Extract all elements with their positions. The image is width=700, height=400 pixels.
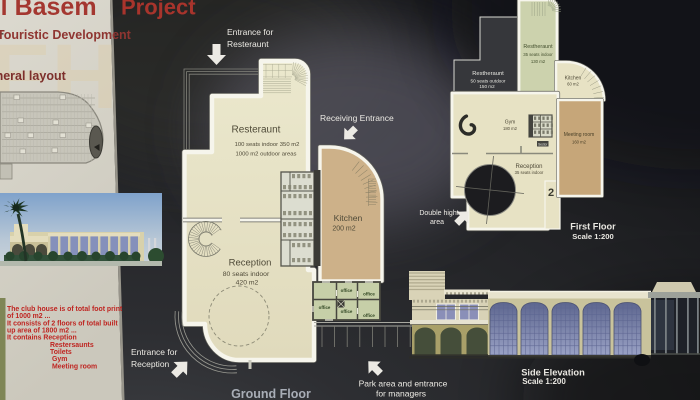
svg-text:for managers: for managers <box>376 389 426 399</box>
svg-text:Kitchen: Kitchen <box>334 213 363 223</box>
svg-text:office: office <box>341 288 353 293</box>
svg-text:Ground Floor: Ground Floor <box>231 387 311 400</box>
svg-text:up area of 1800 m2 ...: up area of 1800 m2 ... <box>7 328 77 335</box>
svg-text:60 m2: 60 m2 <box>567 82 579 87</box>
svg-text:150 m2: 150 m2 <box>479 84 495 89</box>
svg-text:Receiving Entrance: Receiving Entrance <box>320 113 394 123</box>
svg-text:Meeting room: Meeting room <box>564 132 595 138</box>
svg-text:The club house is of total foo: The club house is of total foot print <box>7 306 123 313</box>
svg-text:160 m2: 160 m2 <box>572 140 587 145</box>
svg-text:Restheraunt: Restheraunt <box>472 71 504 77</box>
svg-text:Project: Project <box>121 0 196 20</box>
svg-text:area: area <box>430 219 444 226</box>
svg-text:35 seats indoor: 35 seats indoor <box>523 52 553 57</box>
svg-text:200 m2: 200 m2 <box>332 226 355 233</box>
svg-text:Gym: Gym <box>505 120 516 126</box>
svg-text:Gym: Gym <box>52 356 67 363</box>
svg-text:Toilets: Toilets <box>50 349 72 356</box>
svg-text:Reception: Reception <box>131 359 170 369</box>
svg-text:420 m2: 420 m2 <box>236 280 259 287</box>
svg-text:2: 2 <box>548 187 554 199</box>
svg-text:of 1000 m2 ...: of 1000 m2 ... <box>7 313 50 320</box>
svg-text:Restheraunt: Restheraunt <box>523 44 553 50</box>
svg-text:Side Elevation: Side Elevation <box>521 368 585 378</box>
svg-text:Entrance for: Entrance for <box>227 27 273 37</box>
svg-text:50 seats outdoor: 50 seats outdoor <box>471 79 506 84</box>
svg-text:130 m2: 130 m2 <box>531 59 546 64</box>
svg-text:Meeting room: Meeting room <box>52 364 97 371</box>
svg-text:Resteraunt: Resteraunt <box>232 125 281 136</box>
svg-text:Double hight: Double hight <box>419 210 458 217</box>
svg-text:Scale 1:200: Scale 1:200 <box>572 232 613 241</box>
svg-text:1000 m2 outdoor areas: 1000 m2 outdoor areas <box>236 152 297 158</box>
svg-text:office: office <box>363 292 375 297</box>
svg-text:office: office <box>319 305 331 310</box>
svg-text:Scale 1:200: Scale 1:200 <box>522 377 566 386</box>
svg-text:Entrance for: Entrance for <box>131 347 177 357</box>
svg-text:El Basem: El Basem <box>0 0 97 21</box>
svg-text:It consists of 2 floors of tot: It consists of 2 floors of total built <box>7 321 118 328</box>
svg-text:80 seats indoor: 80 seats indoor <box>223 271 270 278</box>
svg-text:Resteraunt: Resteraunt <box>227 39 269 49</box>
svg-text:First Floor: First Floor <box>570 222 616 232</box>
svg-text:Reception: Reception <box>229 258 272 269</box>
svg-text:Sector: Sector <box>538 143 548 147</box>
svg-text:It contains Reception: It contains Reception <box>7 335 77 342</box>
svg-text:180 m2: 180 m2 <box>503 126 518 131</box>
svg-text:office: office <box>363 313 375 318</box>
svg-text:general layout: general layout <box>0 69 67 83</box>
svg-text:35 seats indoor: 35 seats indoor <box>515 170 544 175</box>
svg-text:Touristic Development: Touristic Development <box>0 28 132 42</box>
svg-text:Park area and entrance: Park area and entrance <box>359 379 448 389</box>
svg-text:office: office <box>341 309 353 314</box>
svg-text:100 seats indoor 350 m2: 100 seats indoor 350 m2 <box>235 142 300 148</box>
svg-text:Restersaunts: Restersaunts <box>50 342 94 349</box>
